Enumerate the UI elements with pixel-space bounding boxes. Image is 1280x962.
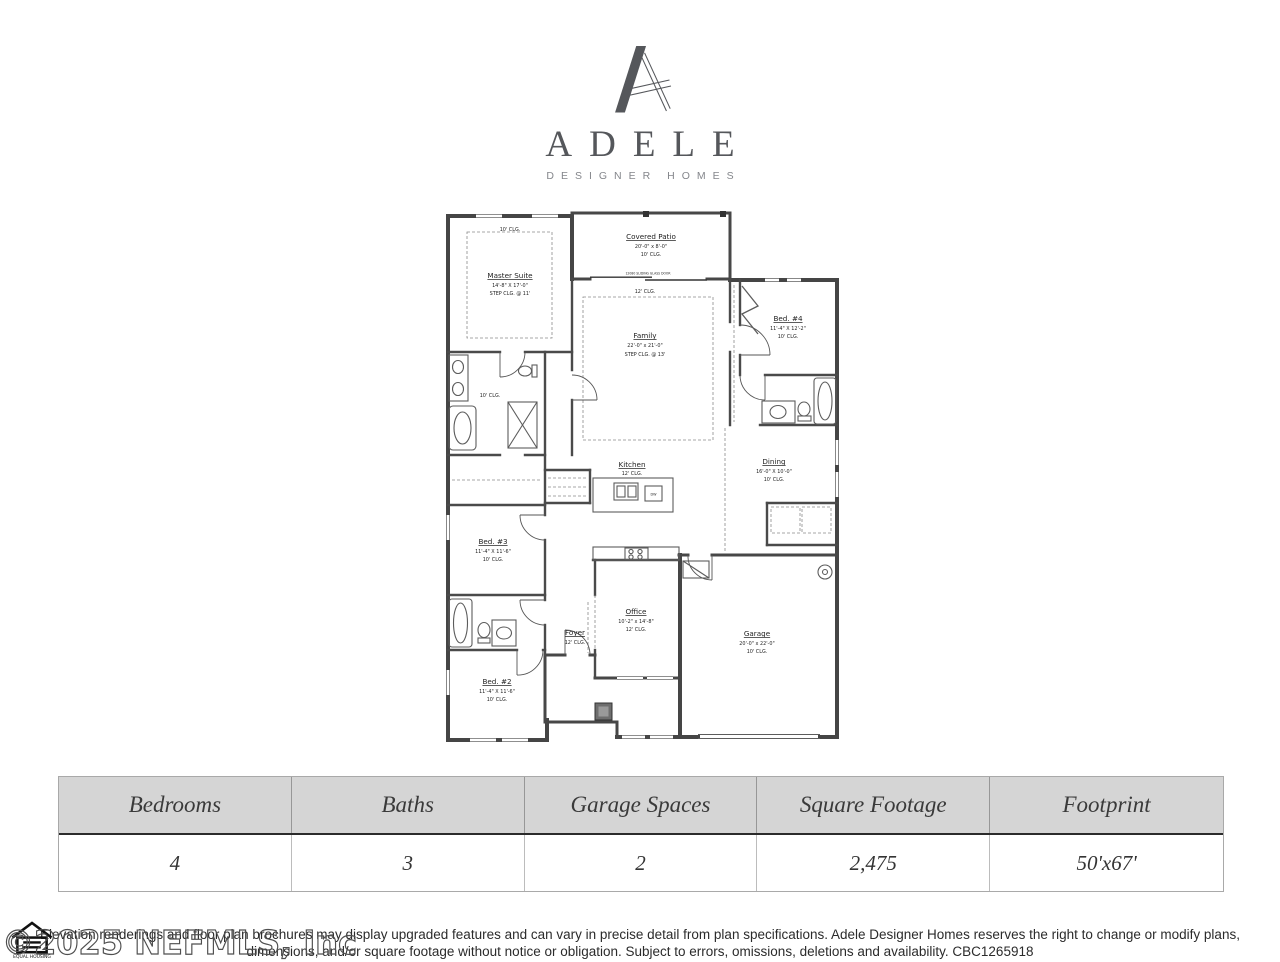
- room-label-bed-4: Bed. #4 11'-4" X 12'-2" 10' CLG.: [770, 314, 806, 340]
- brand-tagline: DESIGNER HOMES: [0, 170, 1280, 182]
- annotation-master-bath-ceiling: 10' CLG.: [480, 393, 501, 399]
- svg-text:20'-0" x 8'-0": 20'-0" x 8'-0": [635, 244, 667, 250]
- specs-value-row: 4 3 2 2,475 50'x67': [59, 835, 1223, 891]
- svg-text:Foyer: Foyer: [565, 628, 585, 637]
- sliding-glass-door: [590, 277, 707, 280]
- svg-text:12' CLG.: 12' CLG.: [565, 640, 586, 646]
- specs-header-bedrooms: Bedrooms: [59, 777, 292, 833]
- room-label-garage: Garage 20'-0" x 22'-0" 10' CLG.: [739, 629, 774, 655]
- room-label-bed-2: Bed. #2 11'-4" X 11'-6" 10' CLG.: [479, 677, 515, 703]
- svg-text:10' CLG.: 10' CLG.: [764, 477, 785, 483]
- patio-post: [643, 211, 649, 217]
- svg-text:Office: Office: [626, 607, 648, 616]
- svg-text:Dining: Dining: [762, 457, 785, 466]
- svg-text:10' CLG.: 10' CLG.: [641, 252, 662, 258]
- svg-text:Master Suite: Master Suite: [487, 271, 533, 280]
- svg-text:14'-8" X 17'-0": 14'-8" X 17'-0": [492, 283, 528, 289]
- annotation-master-ceiling: 10' CLG.: [500, 227, 521, 233]
- specs-value-footprint: 50'x67': [990, 835, 1223, 891]
- specs-header-footprint: Footprint: [990, 777, 1223, 833]
- adele-logo-icon: [606, 40, 674, 120]
- specs-table: Bedrooms Baths Garage Spaces Square Foot…: [58, 776, 1224, 892]
- annotation-sliding-door: 12080 SLIDING GLASS DOOR: [625, 272, 671, 276]
- floor-plan: Master Suite 14'-8" X 17'-0" STEP CLG. @…: [440, 210, 840, 747]
- svg-text:Garage: Garage: [744, 629, 771, 638]
- svg-text:Bed. #3: Bed. #3: [478, 537, 507, 546]
- floor-plan-secondary-walls: [545, 213, 837, 737]
- room-label-dining: Dining 16'-0" X 10'-0" 10' CLG.: [756, 457, 792, 483]
- svg-text:Kitchen: Kitchen: [618, 460, 645, 469]
- annotation-dishwasher: DW: [651, 493, 658, 497]
- specs-value-square-footage: 2,475: [757, 835, 990, 891]
- brand-header: ADELE DESIGNER HOMES: [0, 40, 1280, 182]
- specs-value-garage-spaces: 2: [525, 835, 758, 891]
- svg-text:11'-4" X 12'-2": 11'-4" X 12'-2": [770, 326, 806, 332]
- svg-text:Bed. #4: Bed. #4: [773, 314, 803, 323]
- svg-text:16'-0" X 10'-0": 16'-0" X 10'-0": [756, 469, 792, 475]
- svg-text:10' CLG.: 10' CLG.: [483, 557, 504, 563]
- svg-text:12' CLG.: 12' CLG.: [626, 627, 647, 633]
- room-label-covered-patio: Covered Patio 20'-0" x 8'-0" 10' CLG.: [626, 232, 676, 258]
- svg-text:10' CLG.: 10' CLG.: [778, 334, 799, 340]
- nefmls-watermark: ©2025 NEFMLS, Inc: [2, 923, 357, 962]
- svg-text:11'-4" X 11'-6": 11'-4" X 11'-6": [475, 549, 511, 555]
- svg-text:10'-2" x 14'-8": 10'-2" x 14'-8": [618, 619, 653, 625]
- room-label-office: Office 10'-2" x 14'-8" 12' CLG.: [618, 607, 653, 633]
- specs-header-baths: Baths: [292, 777, 525, 833]
- room-label-family: Family 22'-0" x 21'-0" STEP CLG. @ 13': [625, 331, 666, 358]
- specs-value-baths: 3: [292, 835, 525, 891]
- svg-text:12' CLG.: 12' CLG.: [622, 471, 643, 477]
- room-label-master-suite: Master Suite 14'-8" X 17'-0" STEP CLG. @…: [487, 271, 533, 297]
- specs-header-square-footage: Square Footage: [757, 777, 990, 833]
- svg-text:22'-0" x 21'-0": 22'-0" x 21'-0": [627, 343, 662, 349]
- svg-text:STEP CLG. @ 11': STEP CLG. @ 11': [490, 291, 531, 297]
- specs-header-row: Bedrooms Baths Garage Spaces Square Foot…: [59, 777, 1223, 835]
- svg-text:10' CLG.: 10' CLG.: [487, 697, 508, 703]
- specs-value-bedrooms: 4: [59, 835, 292, 891]
- svg-text:STEP CLG. @ 13': STEP CLG. @ 13': [625, 352, 666, 358]
- brochure-page: { "brand": { "name": "ADELE", "tagline":…: [0, 0, 1280, 960]
- specs-header-garage-spaces: Garage Spaces: [525, 777, 758, 833]
- room-label-bed-3: Bed. #3 11'-4" X 11'-6" 10' CLG.: [475, 537, 511, 563]
- room-label-kitchen: Kitchen 12' CLG.: [618, 460, 645, 477]
- svg-text:Bed. #2: Bed. #2: [482, 677, 511, 686]
- patio-post: [720, 211, 726, 217]
- svg-text:Covered Patio: Covered Patio: [626, 232, 676, 241]
- annotation-family-ceiling: 12' CLG.: [635, 289, 656, 295]
- svg-text:11'-4" X 11'-6": 11'-4" X 11'-6": [479, 689, 515, 695]
- brand-name: ADELE: [0, 126, 1280, 163]
- svg-text:10' CLG.: 10' CLG.: [747, 649, 768, 655]
- svg-text:20'-0" x 22'-0": 20'-0" x 22'-0": [739, 641, 774, 647]
- svg-text:Family: Family: [633, 331, 657, 340]
